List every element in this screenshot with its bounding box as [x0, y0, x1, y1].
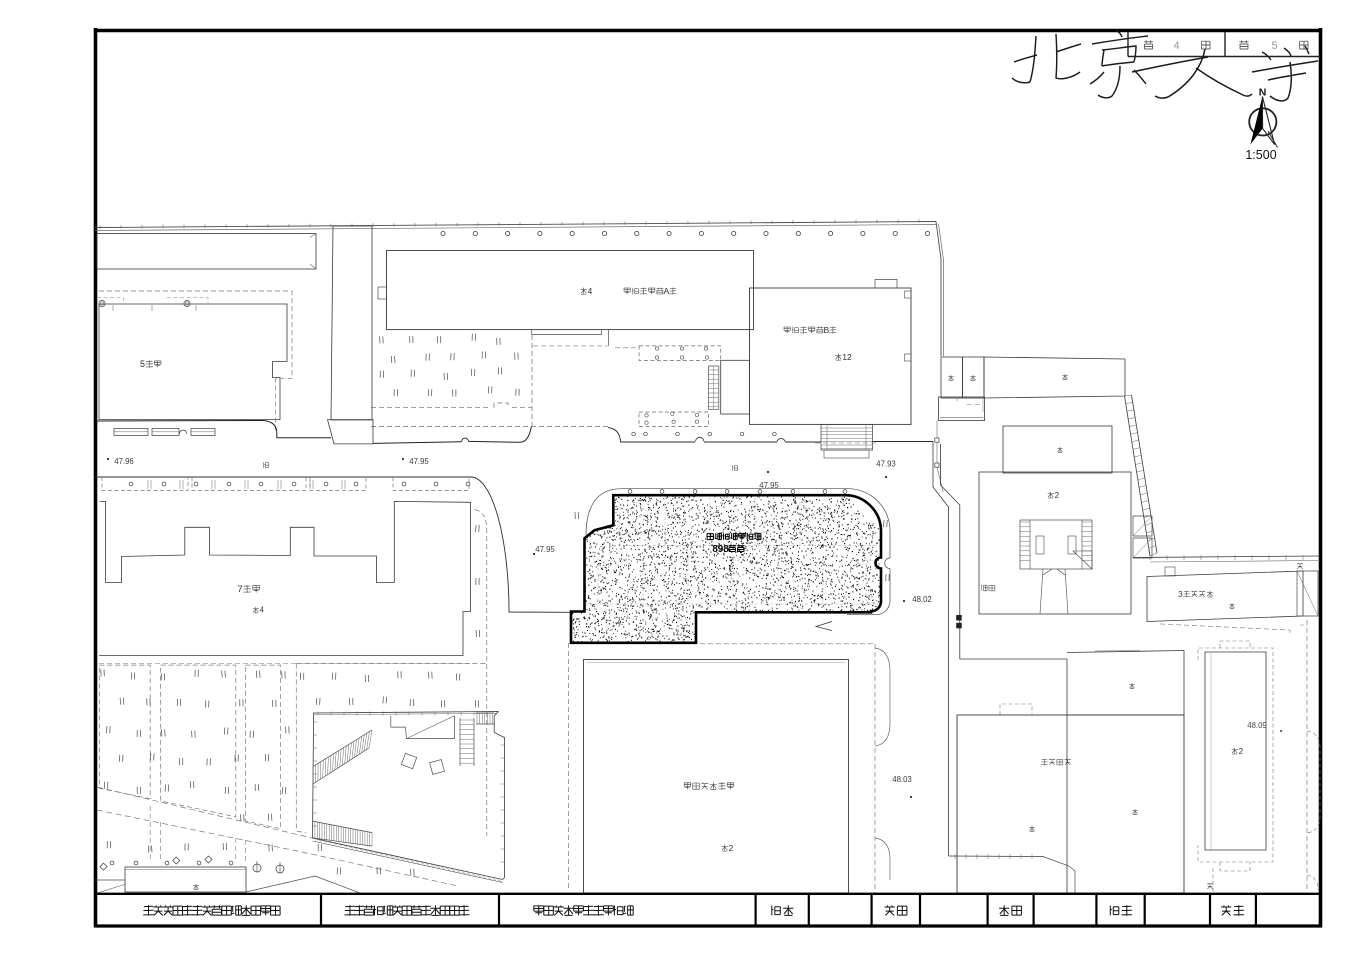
svg-text:48.03: 48.03	[892, 775, 912, 784]
svg-text:2: 2	[729, 843, 734, 853]
svg-text:1:500: 1:500	[1245, 148, 1276, 162]
svg-text:47.93: 47.93	[876, 460, 896, 469]
svg-text:47.96: 47.96	[114, 457, 134, 466]
svg-text:47.95: 47.95	[759, 481, 779, 490]
svg-text:48.02: 48.02	[912, 595, 932, 604]
svg-text:4: 4	[260, 606, 265, 615]
svg-text:2: 2	[1239, 747, 1244, 756]
svg-text:3: 3	[1178, 590, 1183, 599]
svg-text:47.95: 47.95	[409, 457, 429, 466]
svg-text:5: 5	[1271, 40, 1277, 52]
svg-text:48.09: 48.09	[1247, 721, 1267, 730]
svg-text:5: 5	[140, 359, 145, 369]
svg-text:N: N	[1259, 87, 1267, 99]
svg-text:2: 2	[847, 352, 852, 362]
svg-text:898: 898	[712, 544, 729, 555]
svg-text:4: 4	[1173, 40, 1179, 52]
svg-text:2: 2	[1055, 491, 1060, 500]
svg-text:A: A	[664, 286, 670, 296]
svg-text:47.95: 47.95	[535, 545, 555, 554]
svg-text:7: 7	[237, 584, 242, 595]
svg-text:B: B	[824, 325, 830, 335]
svg-text:4: 4	[588, 286, 593, 296]
